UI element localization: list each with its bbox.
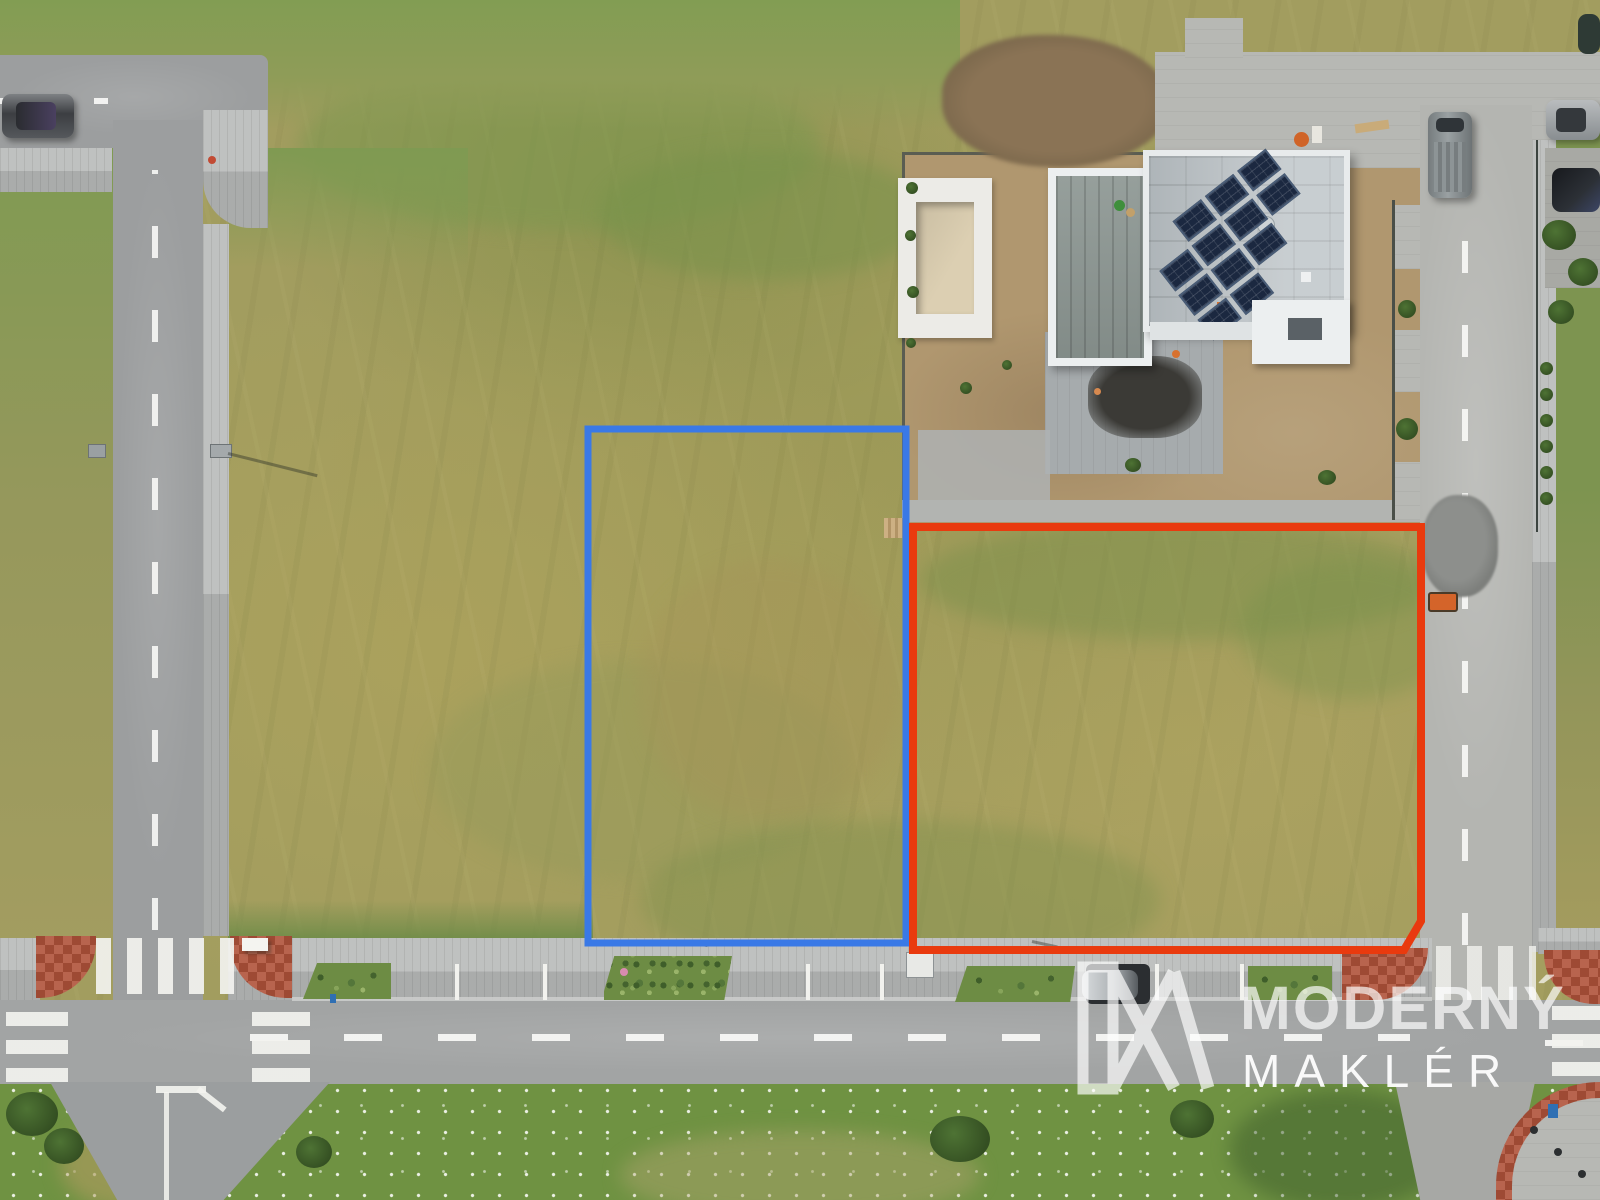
watermark-logo xyxy=(1076,960,1216,1096)
plot-outline-blue xyxy=(588,429,906,943)
aerial-photo-scene: MODERNÝ MAKLÉR xyxy=(0,0,1600,1200)
plot-outline-red xyxy=(913,527,1421,950)
brand-monogram-icon xyxy=(1076,960,1216,1096)
watermark-brand-name: MODERNÝ xyxy=(1240,978,1566,1039)
watermark-brand-subtitle: MAKLÉR xyxy=(1242,1048,1515,1094)
